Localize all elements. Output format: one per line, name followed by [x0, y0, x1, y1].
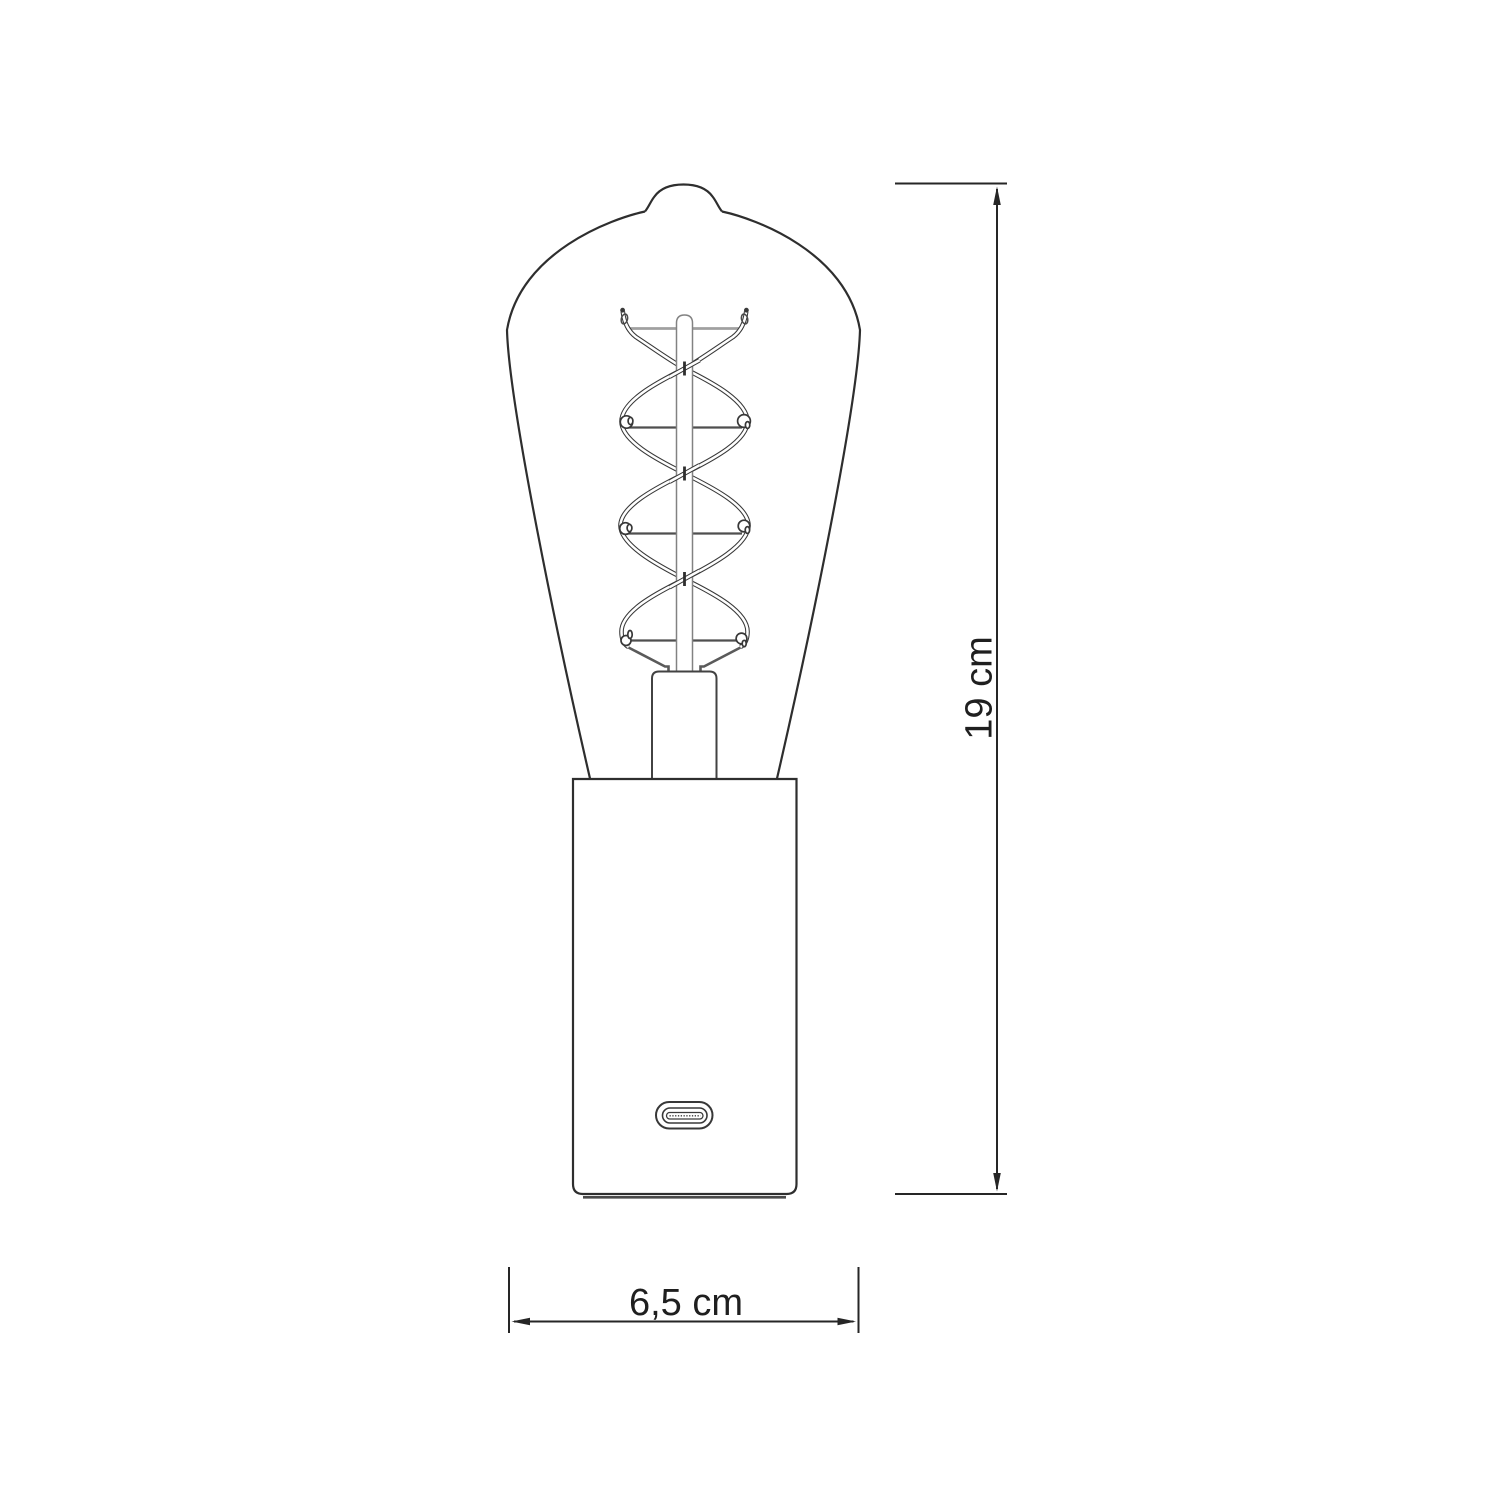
svg-text:19 cm: 19 cm: [959, 636, 1001, 739]
svg-text:6,5 cm: 6,5 cm: [629, 1282, 743, 1324]
